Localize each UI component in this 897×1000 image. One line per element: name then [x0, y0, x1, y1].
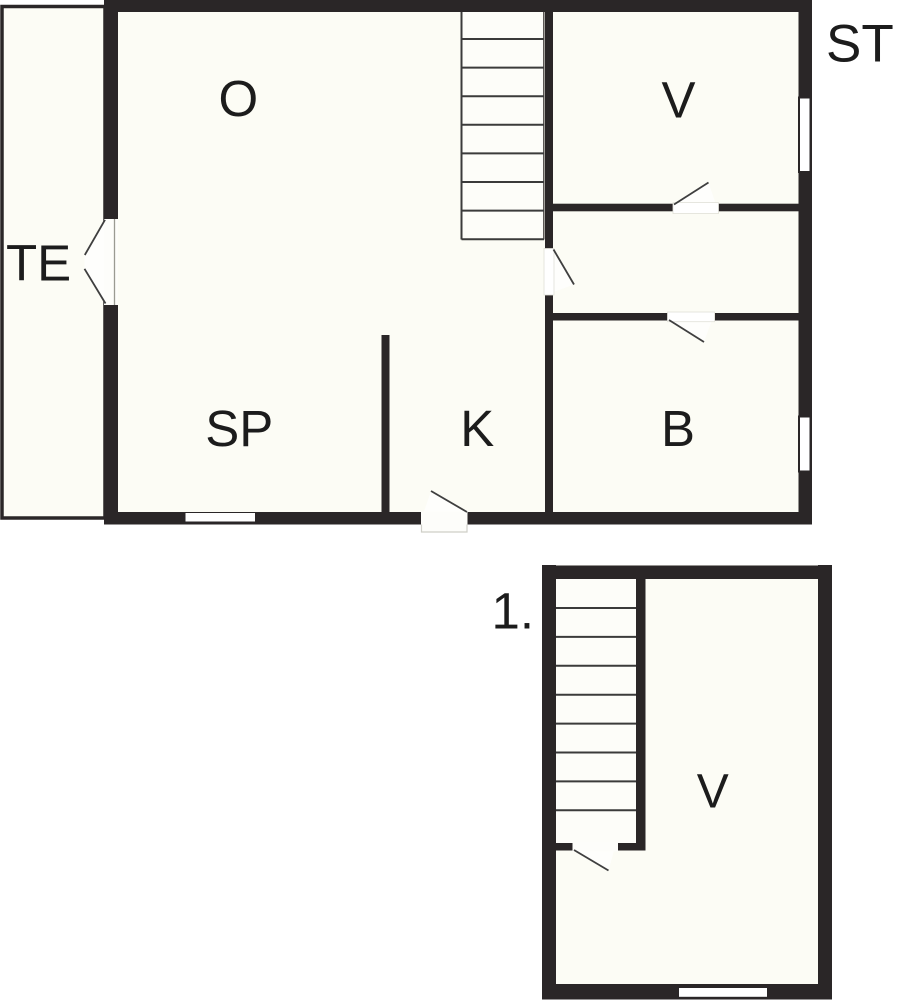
svg-text:V: V: [661, 72, 695, 129]
svg-text:SP: SP: [205, 400, 273, 457]
svg-text:O: O: [218, 70, 258, 127]
svg-text:TE: TE: [6, 235, 71, 292]
svg-text:1.: 1.: [492, 583, 535, 640]
svg-text:V: V: [697, 766, 729, 819]
svg-text:ST: ST: [826, 15, 894, 74]
svg-text:B: B: [661, 400, 695, 457]
svg-text:K: K: [460, 400, 494, 457]
